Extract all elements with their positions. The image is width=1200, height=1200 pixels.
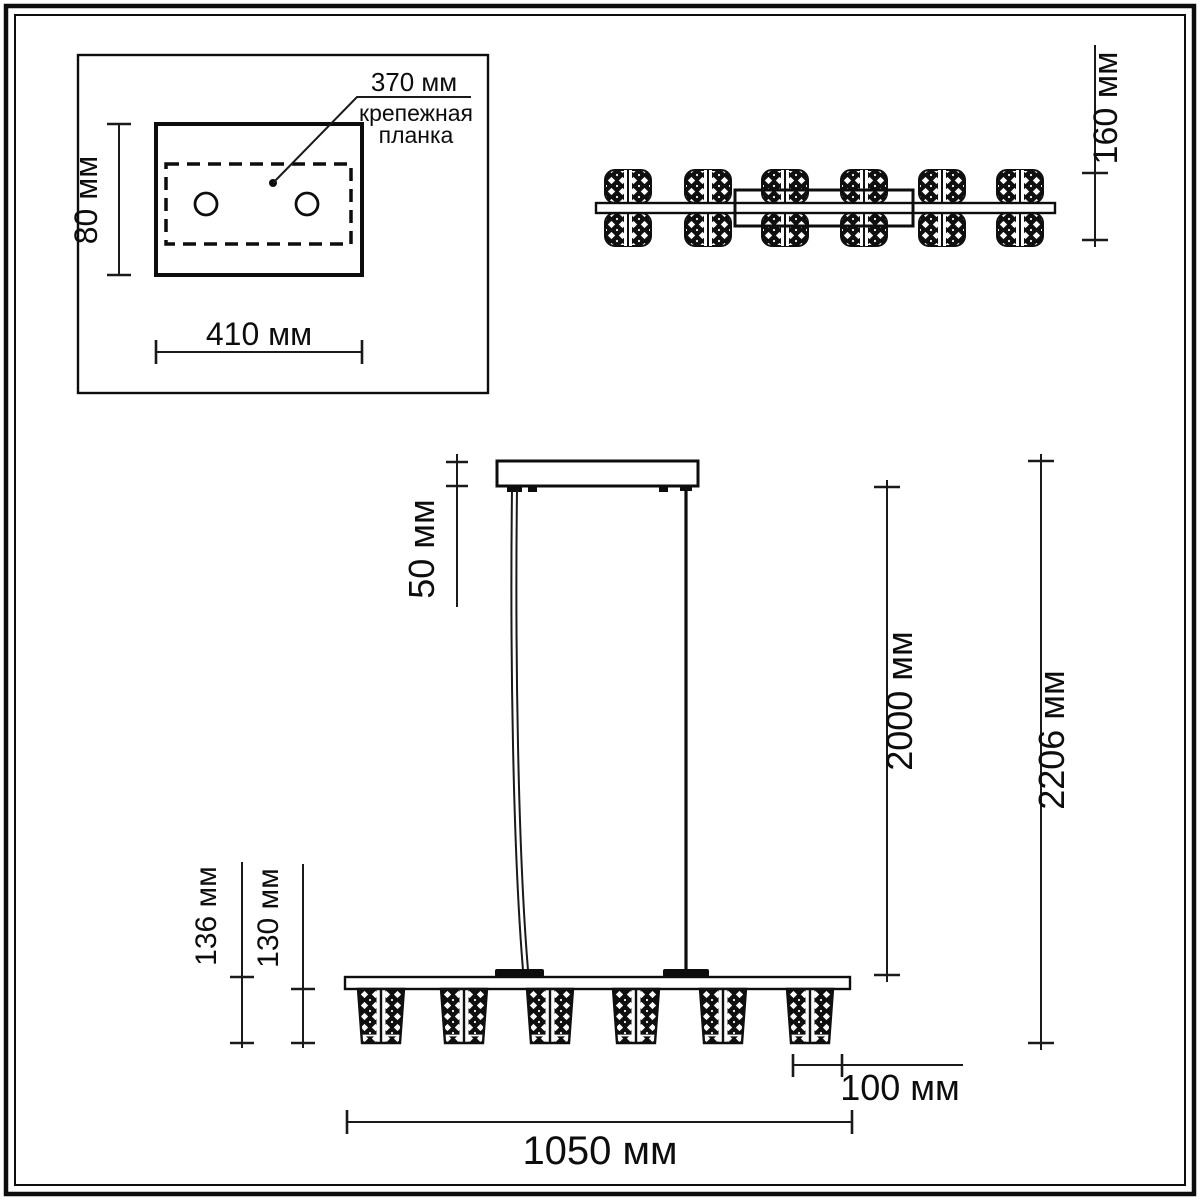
cable-grip [507, 485, 522, 492]
lamp-shade [358, 989, 404, 1043]
plate-name-line2: планка [379, 122, 454, 148]
mounting-hole-right [296, 193, 318, 215]
fixture-bar-top-view [596, 203, 1055, 213]
ceiling-canopy [497, 461, 698, 486]
height-label: 80 мм [68, 156, 104, 244]
bar-with-shade-label: 136 мм [190, 866, 223, 966]
rod-mount [663, 969, 709, 977]
cable-mount [495, 969, 544, 977]
lamp-shade [700, 989, 746, 1043]
depth-label: 160 мм [1087, 52, 1125, 165]
canopy-height-label: 50 мм [401, 499, 442, 599]
mounting-hole-left [195, 193, 217, 215]
total-height-label: 2206 мм [1031, 670, 1072, 810]
canopy-nub [659, 485, 668, 492]
width-label: 410 мм [206, 316, 312, 352]
shade-width-label: 100 мм [840, 1067, 960, 1108]
lamp-shade [787, 989, 833, 1043]
fixture-bar [345, 977, 850, 989]
dimension-drawing: 370 мм крепежная планка 80 мм 410 мм [0, 0, 1200, 1200]
technical-drawing-page: 370 мм крепежная планка 80 мм 410 мм [0, 0, 1200, 1200]
canopy-nub [528, 485, 537, 492]
lamp-shade [613, 989, 659, 1043]
shade-height-label: 130 мм [252, 868, 285, 968]
lamp-shade [441, 989, 487, 1043]
plate-width-label: 370 мм [371, 67, 457, 97]
bar-length-label: 1050 мм [522, 1129, 677, 1173]
suspension-length-label: 2000 мм [879, 631, 920, 771]
lamp-shade [527, 989, 573, 1043]
